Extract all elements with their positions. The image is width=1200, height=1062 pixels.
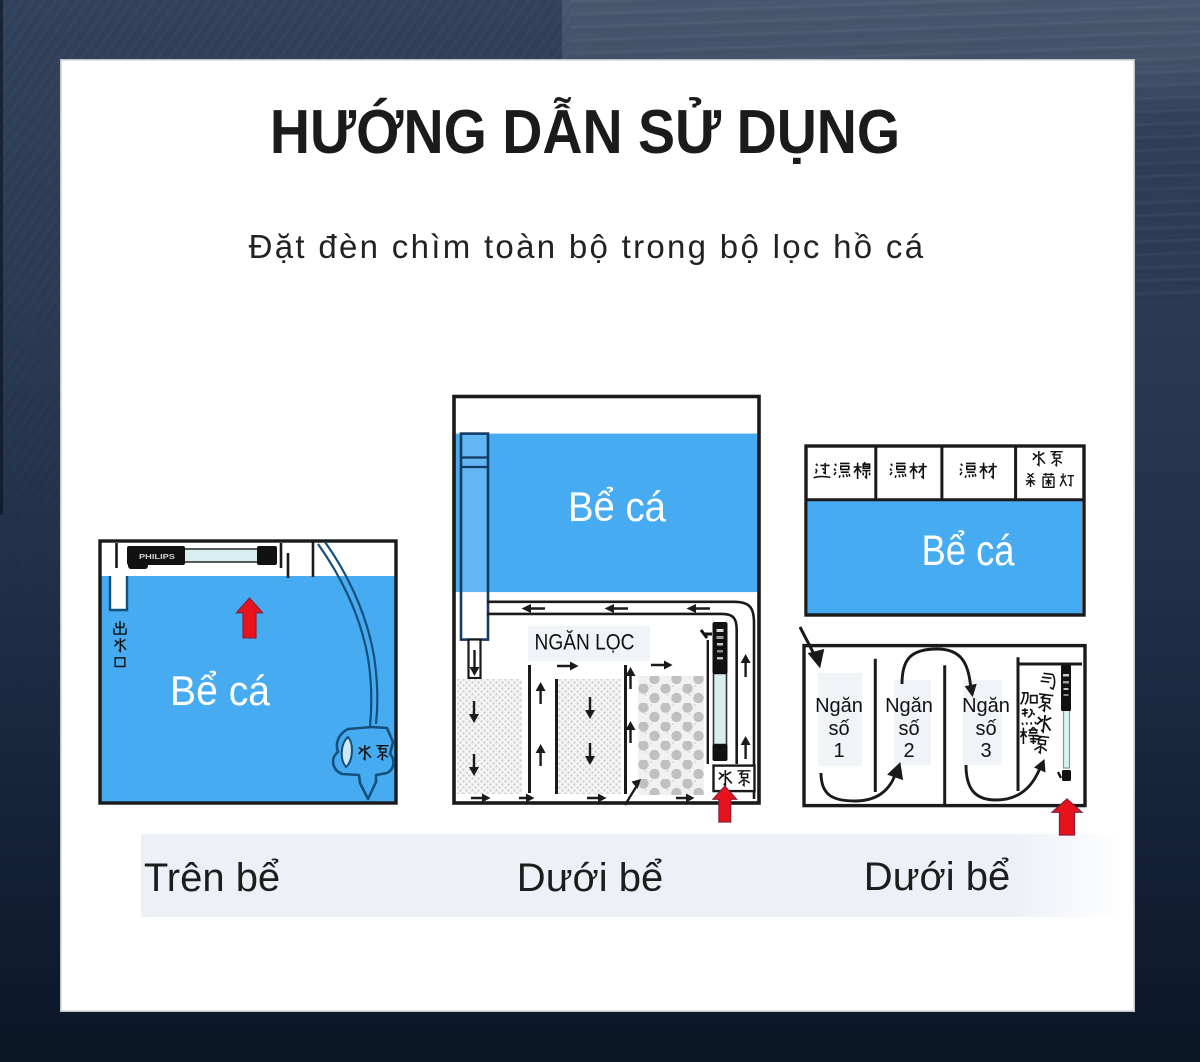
svg-text:số: số	[975, 718, 996, 740]
svg-text:Bể cá: Bể cá	[922, 527, 1015, 575]
svg-text:Ngăn: Ngăn	[815, 695, 863, 717]
svg-text:PHILIPS: PHILIPS	[139, 552, 175, 561]
svg-text:Bể cá: Bể cá	[170, 667, 271, 714]
svg-text:NGĂN LỌC: NGĂN LỌC	[535, 630, 635, 655]
svg-text:3: 3	[980, 740, 991, 762]
svg-text:Bể cá: Bể cá	[568, 483, 667, 530]
svg-text:Ngăn: Ngăn	[885, 695, 933, 717]
svg-text:số: số	[898, 718, 919, 740]
svg-text:1: 1	[833, 740, 844, 762]
svg-text:Ngăn: Ngăn	[962, 695, 1010, 717]
svg-text:2: 2	[903, 740, 914, 762]
svg-text:số: số	[828, 718, 849, 740]
